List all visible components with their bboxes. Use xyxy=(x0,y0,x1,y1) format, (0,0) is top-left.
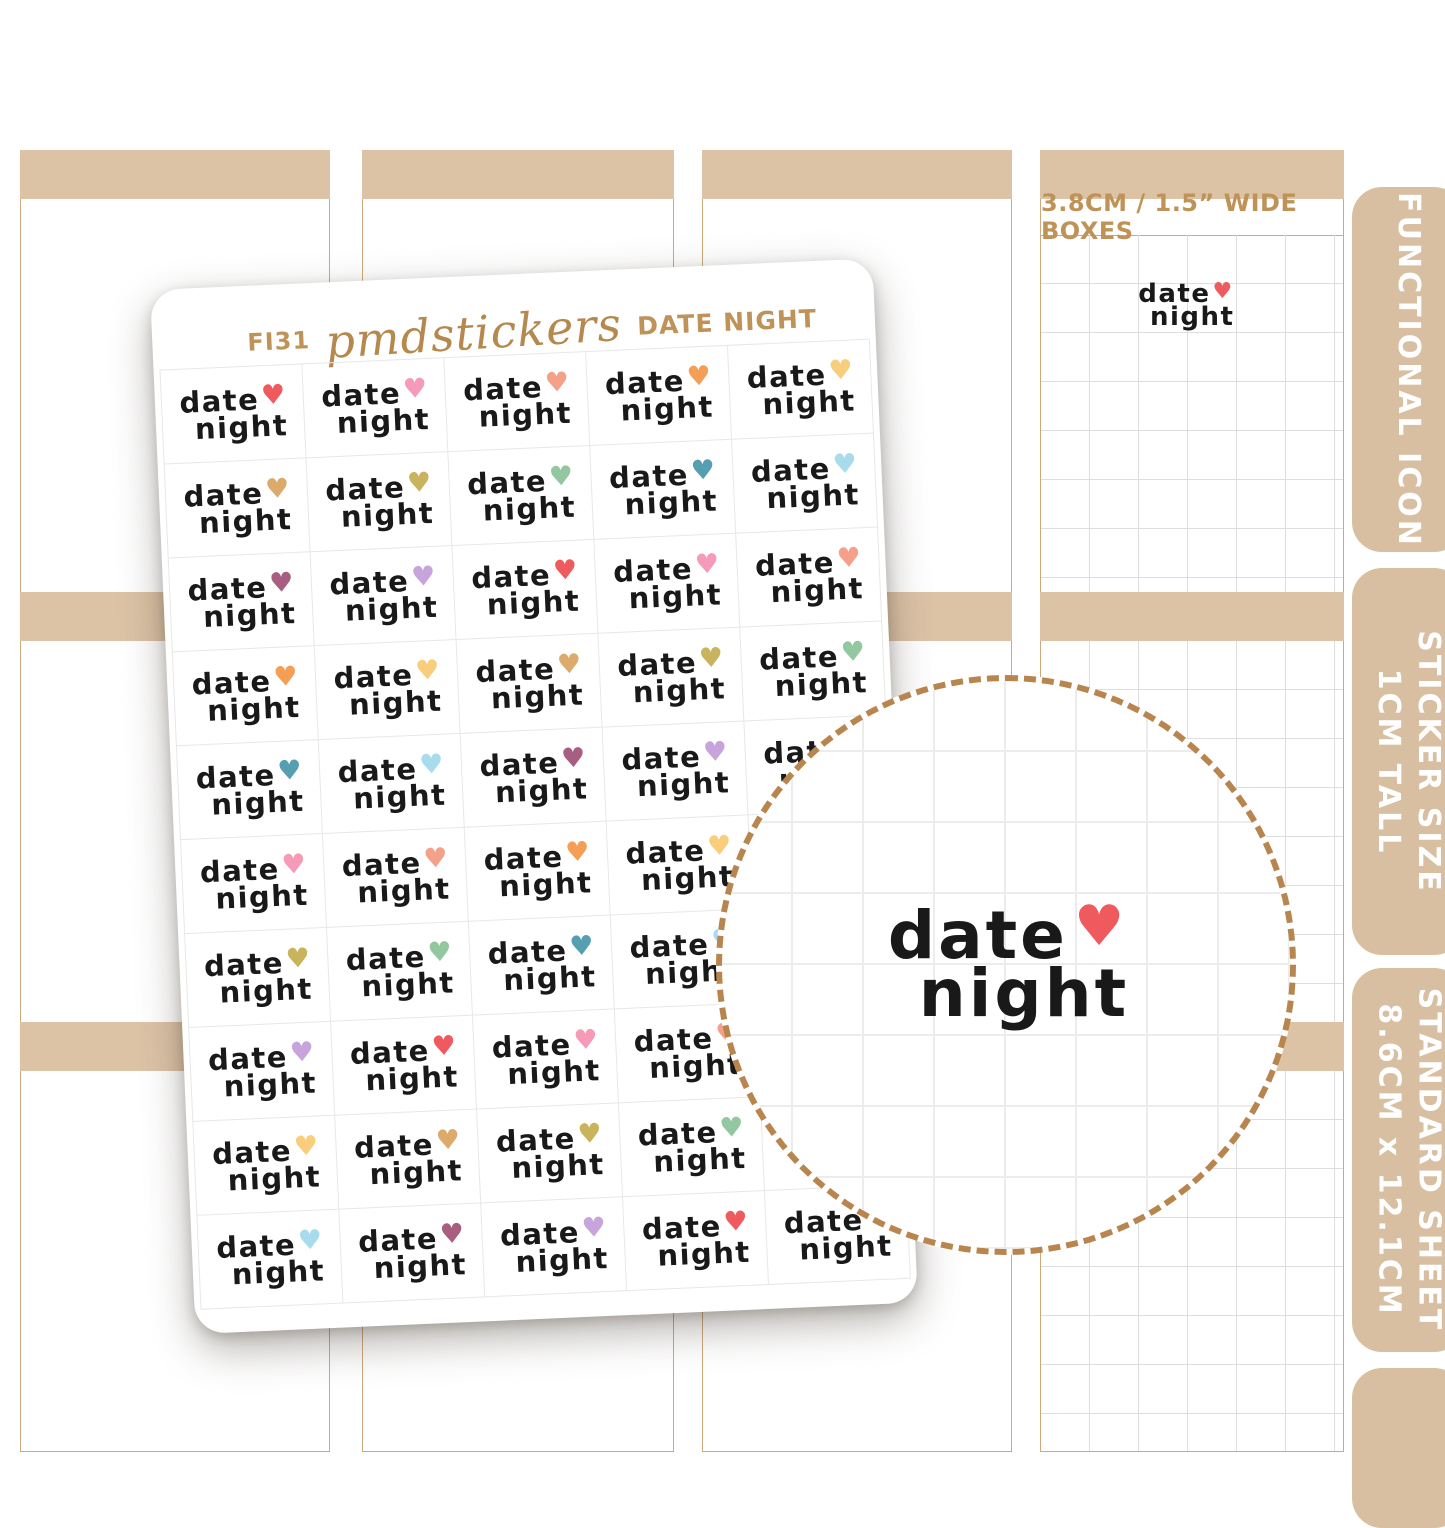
sticker-word-night: night xyxy=(373,1251,467,1281)
sheet-sticker: date♥night xyxy=(331,1016,477,1116)
heart-icon: ♥ xyxy=(431,1032,456,1060)
mini-sticker-word-night: night xyxy=(1150,306,1234,329)
sticker-word-night: night xyxy=(219,976,313,1006)
sheet-sticker: date♥night xyxy=(452,540,598,640)
sticker-word-night: night xyxy=(632,675,726,705)
heart-icon: ♥ xyxy=(265,475,290,503)
sticker-word-night: night xyxy=(486,588,580,618)
sticker-word-night: night xyxy=(223,1069,317,1099)
heart-icon: ♥ xyxy=(411,563,436,591)
heart-icon: ♥ xyxy=(561,744,586,772)
sticker-word-night: night xyxy=(507,1057,601,1087)
heart-icon: ♥ xyxy=(832,450,857,478)
sheet-sticker: date♥night xyxy=(302,358,448,458)
heart-icon: ♥ xyxy=(289,1039,314,1067)
sticker-word-night: night xyxy=(766,481,860,511)
sticker-word-night: night xyxy=(482,494,576,524)
heart-icon: ♥ xyxy=(548,463,573,491)
sticker-word-night: night xyxy=(624,487,718,517)
heart-icon: ♥ xyxy=(719,1114,744,1142)
heart-icon: ♥ xyxy=(277,757,302,785)
sheet-sticker: date♥night xyxy=(594,534,740,634)
sheet-sticker: date♥night xyxy=(444,352,590,452)
heart-icon: ♥ xyxy=(273,663,298,691)
heart-icon: ♥ xyxy=(690,457,715,485)
sheet-sticker: date♥night xyxy=(619,1097,765,1197)
heart-icon: ♥ xyxy=(435,1126,460,1154)
heart-icon: ♥ xyxy=(269,569,294,597)
sheet-sticker: date♥night xyxy=(177,740,323,840)
wide-boxes-grid: date ♥ night xyxy=(1041,235,1343,592)
sticker-word-night: night xyxy=(494,775,588,805)
tab-partial-bottom xyxy=(1352,1368,1445,1528)
zoomed-date-night-sticker: date ♥ night xyxy=(883,907,1129,1023)
sticker-word-night: night xyxy=(336,406,430,436)
planner-box-header xyxy=(1040,592,1344,643)
sticker-word-night: night xyxy=(211,788,305,818)
sticker-word-night: night xyxy=(361,969,455,999)
tab-label: STANDARD SHEET 8.6CM x 12.1CM xyxy=(1368,988,1445,1333)
sticker-word-night: night xyxy=(511,1151,605,1181)
sticker-word-night: night xyxy=(770,575,864,605)
sticker-word-night: night xyxy=(636,769,730,799)
sheet-sticker: date♥night xyxy=(623,1191,769,1291)
sticker-word-night: night xyxy=(503,963,597,993)
sticker-word-night: night xyxy=(657,1239,751,1269)
sheet-sticker: date♥night xyxy=(736,527,882,627)
zoom-sticker-word-night: night xyxy=(919,965,1129,1023)
tab-functional-icon: FUNCTIONAL ICON xyxy=(1352,187,1445,552)
sheet-sticker: date♥night xyxy=(481,1197,627,1297)
mini-date-night-sticker: date ♥ night xyxy=(1136,283,1234,329)
sheet-sticker: date♥night xyxy=(590,440,736,540)
heart-icon: ♥ xyxy=(707,832,732,860)
zoom-circle: date ♥ night xyxy=(716,675,1296,1255)
sticker-word-night: night xyxy=(515,1245,609,1275)
sheet-sticker: date♥night xyxy=(448,446,594,546)
sheet-title: DATE NIGHT xyxy=(637,303,818,340)
sheet-sticker: date♥night xyxy=(306,452,452,552)
product-mockup-page: { "sheet": { "code": "FI31", "brand": "p… xyxy=(0,0,1445,1445)
sticker-word-night: night xyxy=(365,1063,459,1093)
sheet-sticker: date♥night xyxy=(335,1110,481,1210)
sheet-sticker: date♥night xyxy=(193,1116,339,1216)
wide-boxes-caption: 3.8CM / 1.5” WIDE BOXES xyxy=(1041,199,1343,236)
sticker-word-night: night xyxy=(774,669,868,699)
heart-icon: ♥ xyxy=(840,638,865,666)
sheet-sticker: date♥night xyxy=(173,646,319,746)
sheet-sticker: date♥night xyxy=(728,340,874,440)
tab-label: FUNCTIONAL ICON xyxy=(1388,192,1428,548)
tab-label: STICKER SIZE 1CM TALL xyxy=(1368,630,1445,894)
sheet-sticker: date♥night xyxy=(469,915,615,1015)
heart-icon: ♥ xyxy=(694,550,719,578)
sticker-word-night: night xyxy=(628,581,722,611)
heart-icon: ♥ xyxy=(406,469,431,497)
sticker-word-night: night xyxy=(357,875,451,905)
sheet-sticker: date♥night xyxy=(319,734,465,834)
heart-icon: ♥ xyxy=(552,557,577,585)
heart-icon: ♥ xyxy=(698,644,723,672)
heart-icon: ♥ xyxy=(544,369,569,397)
sticker-word-night: night xyxy=(490,681,584,711)
sticker-word-night: night xyxy=(640,863,734,893)
sheet-sticker: date♥night xyxy=(586,346,732,446)
heart-icon: ♥ xyxy=(1212,281,1232,303)
sticker-word-night: night xyxy=(194,412,288,442)
sheet-sticker: date♥night xyxy=(169,552,315,652)
sticker-word-night: night xyxy=(499,869,593,899)
heart-icon: ♥ xyxy=(836,544,861,572)
sheet-sticker: date♥night xyxy=(327,922,473,1022)
planner-box-header xyxy=(362,150,674,201)
heart-icon: ♥ xyxy=(569,932,594,960)
heart-icon: ♥ xyxy=(686,363,711,391)
sticker-word-night: night xyxy=(340,500,434,530)
sheet-sticker: date♥night xyxy=(315,640,461,740)
heart-icon: ♥ xyxy=(297,1226,322,1254)
heart-icon: ♥ xyxy=(285,945,310,973)
sticker-word-night: night xyxy=(762,387,856,417)
sticker-word-night: night xyxy=(231,1257,325,1287)
sticker-word-night: night xyxy=(353,782,447,812)
sticker-word-night: night xyxy=(203,600,297,630)
heart-icon: ♥ xyxy=(565,838,590,866)
sheet-sticker: date♥night xyxy=(189,1022,335,1122)
sticker-word-night: night xyxy=(369,1157,463,1187)
sheet-sticker: date♥night xyxy=(185,928,331,1028)
sticker-word-night: night xyxy=(620,394,714,424)
sheet-sticker: date♥night xyxy=(323,828,469,928)
sheet-sticker: date♥night xyxy=(461,728,607,828)
tab-standard-sheet: STANDARD SHEET 8.6CM x 12.1CM xyxy=(1352,968,1445,1352)
sheet-sticker: date♥night xyxy=(465,822,611,922)
heart-icon: ♥ xyxy=(427,938,452,966)
sticker-word-night: night xyxy=(649,1051,743,1081)
heart-icon: ♥ xyxy=(723,1208,748,1236)
sheet-sticker: date♥night xyxy=(473,1009,619,1109)
planner-box-header xyxy=(20,150,330,201)
heart-icon: ♥ xyxy=(415,657,440,685)
sheet-sticker: date♥night xyxy=(732,434,878,534)
sticker-word-night: night xyxy=(227,1163,321,1193)
planner-box-header xyxy=(702,150,1012,201)
heart-icon: ♥ xyxy=(556,651,581,679)
heart-icon: ♥ xyxy=(1074,899,1124,955)
sheet-sticker: date♥night xyxy=(165,458,311,558)
sheet-sticker: date♥night xyxy=(457,634,603,734)
heart-icon: ♥ xyxy=(402,375,427,403)
heart-icon: ♥ xyxy=(573,1026,598,1054)
sheet-sticker: date♥night xyxy=(477,1103,623,1203)
sticker-word-night: night xyxy=(349,688,443,718)
heart-icon: ♥ xyxy=(423,845,448,873)
sheet-sticker: date♥night xyxy=(603,721,749,821)
sheet-sticker: date♥night xyxy=(197,1210,343,1310)
heart-icon: ♥ xyxy=(419,751,444,779)
sticker-word-night: night xyxy=(653,1145,747,1175)
heart-icon: ♥ xyxy=(293,1132,318,1160)
heart-icon: ♥ xyxy=(581,1214,606,1242)
heart-icon: ♥ xyxy=(281,851,306,879)
sticker-word-night: night xyxy=(215,882,309,912)
sheet-code: FI31 xyxy=(247,326,311,357)
sheet-sticker: date♥night xyxy=(740,621,886,721)
sticker-word-night: night xyxy=(478,400,572,430)
heart-icon: ♥ xyxy=(828,356,853,384)
sticker-word-night: night xyxy=(344,594,438,624)
heart-icon: ♥ xyxy=(439,1220,464,1248)
heart-icon: ♥ xyxy=(702,738,727,766)
tab-sticker-size: STICKER SIZE 1CM TALL xyxy=(1352,568,1445,955)
sticker-word-night: night xyxy=(198,506,292,536)
sheet-sticker: date♥night xyxy=(598,628,744,728)
wide-boxes-panel: 3.8CM / 1.5” WIDE BOXES date ♥ night xyxy=(1040,199,1344,593)
sticker-word-night: night xyxy=(207,694,301,724)
sheet-sticker: date♥night xyxy=(311,546,457,646)
heart-icon: ♥ xyxy=(260,381,285,409)
sticker-word-night: night xyxy=(799,1233,893,1263)
sheet-sticker: date♥night xyxy=(161,364,307,464)
sheet-sticker: date♥night xyxy=(181,834,327,934)
heart-icon: ♥ xyxy=(577,1120,602,1148)
sheet-sticker: date♥night xyxy=(339,1203,485,1303)
